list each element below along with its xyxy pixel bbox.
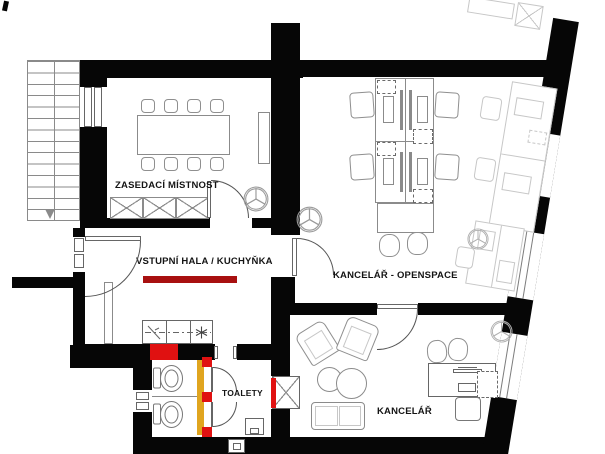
drawer-unit <box>377 80 396 94</box>
monitor <box>409 152 412 192</box>
desk-divider <box>501 153 545 161</box>
desk-pad <box>383 158 394 185</box>
desk-cluster <box>375 78 434 203</box>
door-arc-entry <box>85 241 141 297</box>
round-table <box>336 368 367 399</box>
office-chair <box>349 91 375 119</box>
room-label-meeting: ZASEDACÍ MÍSTNOST <box>115 180 219 191</box>
wall-meeting-bottom-left <box>107 218 210 228</box>
desk-pad <box>514 97 545 119</box>
drawer-unit <box>413 129 433 144</box>
wall-column-top <box>271 23 300 63</box>
room-label-openspace: KANCELÁŘ - OPENSPACE <box>333 270 458 281</box>
wall-central-column-low2 <box>271 409 290 437</box>
jamb-red <box>202 357 212 367</box>
armchair <box>335 315 380 362</box>
armchair-cushion <box>343 326 372 356</box>
armchair <box>294 319 341 367</box>
monitor <box>409 90 412 130</box>
desk-pad <box>417 96 428 123</box>
monitor <box>400 152 403 192</box>
sideboard <box>258 112 270 164</box>
washbasin <box>245 418 264 435</box>
window-toilets-left <box>133 390 152 412</box>
office-chair <box>434 153 460 181</box>
staircase-center-line <box>54 61 55 220</box>
chair <box>407 232 428 255</box>
stairs-direction-arrow <box>45 209 55 219</box>
faint-neighbor-unit <box>514 2 543 30</box>
drawer-unit <box>477 371 498 398</box>
hall-red-bar <box>143 276 237 283</box>
wall-central-column-low <box>271 315 290 376</box>
monitor-top <box>458 367 477 368</box>
jamb-red <box>202 392 212 402</box>
stall-divider <box>152 396 197 397</box>
visitor-chair <box>447 337 469 362</box>
wall-left-stub <box>12 277 73 288</box>
door-jamb <box>74 238 84 252</box>
conference-table <box>137 115 230 155</box>
sofa <box>311 402 365 430</box>
chair <box>141 157 155 171</box>
door-arc-stall <box>213 402 237 427</box>
door-jamb <box>74 254 84 268</box>
keyboard <box>458 383 476 392</box>
ceiling-fan-icon <box>296 206 323 233</box>
niche-inner <box>233 443 241 450</box>
wall-hall-left <box>73 272 85 345</box>
chair <box>379 234 400 257</box>
shaft-red-edge <box>271 378 276 408</box>
wall-hall-bottom-a <box>85 344 150 360</box>
chair <box>141 99 155 113</box>
wall-bottom <box>133 437 506 454</box>
cabinet <box>143 197 176 219</box>
staircase <box>27 60 80 221</box>
sofa-cushion <box>315 406 338 426</box>
stove-icon <box>195 326 208 339</box>
door-arc-office <box>377 309 418 350</box>
kitchenette-unit <box>142 320 213 344</box>
drawer-unit <box>377 142 396 156</box>
chair <box>187 157 201 171</box>
sink-icon <box>146 324 163 341</box>
chair <box>164 99 178 113</box>
window-pane <box>94 87 102 127</box>
office-chair-faint <box>479 96 502 122</box>
wall-segment-red-kitchen <box>150 344 178 360</box>
wall-hall-bottom-c <box>237 344 271 360</box>
ceiling-fan-icon <box>490 320 513 343</box>
wall-meeting-left <box>80 127 107 228</box>
toilet-icon <box>153 399 185 430</box>
window-pane <box>136 392 149 400</box>
chair <box>164 157 178 171</box>
armchair-cushion <box>304 330 333 360</box>
office-chair-faint <box>473 157 496 183</box>
desk-pad <box>383 96 394 123</box>
shaft <box>272 376 300 409</box>
door-jamb <box>214 346 218 359</box>
desk-pad <box>417 158 428 185</box>
door-jamb <box>233 346 237 359</box>
ceiling-fan-icon <box>243 186 269 212</box>
office-chair <box>434 91 460 119</box>
window-meeting-left <box>80 87 107 127</box>
drawer-unit <box>413 189 433 203</box>
wall-hall-left-top <box>73 228 85 237</box>
wall-openspace-office-left <box>271 303 377 315</box>
wall-bottom-niche <box>228 439 245 453</box>
jamb-red <box>202 427 212 437</box>
wall-top-left <box>78 60 303 78</box>
door-arc-hall-openspace <box>297 238 334 275</box>
wall-meeting-bottom-right <box>252 218 271 228</box>
ceiling-fan-icon <box>467 228 489 250</box>
chair <box>210 157 224 171</box>
room-label-toilets: TOALETY <box>222 388 263 398</box>
toilet-icon <box>153 363 185 394</box>
monitor <box>400 90 403 130</box>
room-label-hall: VSTUPNÍ HALA / KUCHYŇKA <box>136 256 273 267</box>
floor-plan: ZASEDACÍ MÍSTNOST VSTUPNÍ HALA / KUCHYŇK… <box>0 0 605 454</box>
window-pane <box>84 87 92 127</box>
small-table <box>377 203 434 233</box>
room-label-office: KANCELÁŘ <box>377 406 432 417</box>
corner-artifact <box>2 1 9 12</box>
wall-top-right <box>300 60 567 77</box>
office-chair <box>349 153 375 181</box>
sofa-cushion <box>339 406 361 426</box>
washbasin-bowl <box>250 428 259 434</box>
faint-neighbor-desk <box>467 0 515 19</box>
window-pane <box>136 402 149 410</box>
wall-toilets-left-bottom <box>133 412 152 437</box>
chair <box>210 99 224 113</box>
chair <box>187 99 201 113</box>
visitor-chair <box>426 339 448 364</box>
wall-toilets-left-top <box>133 360 152 390</box>
wall-meeting-left-top <box>78 77 107 87</box>
cabinet <box>176 197 209 219</box>
wall-central-column-mid <box>271 277 295 303</box>
desk-pad <box>501 172 532 194</box>
drawer-unit <box>527 130 547 146</box>
cabinet <box>110 197 143 219</box>
desk-pad <box>496 260 515 284</box>
desk-chair <box>455 397 481 421</box>
